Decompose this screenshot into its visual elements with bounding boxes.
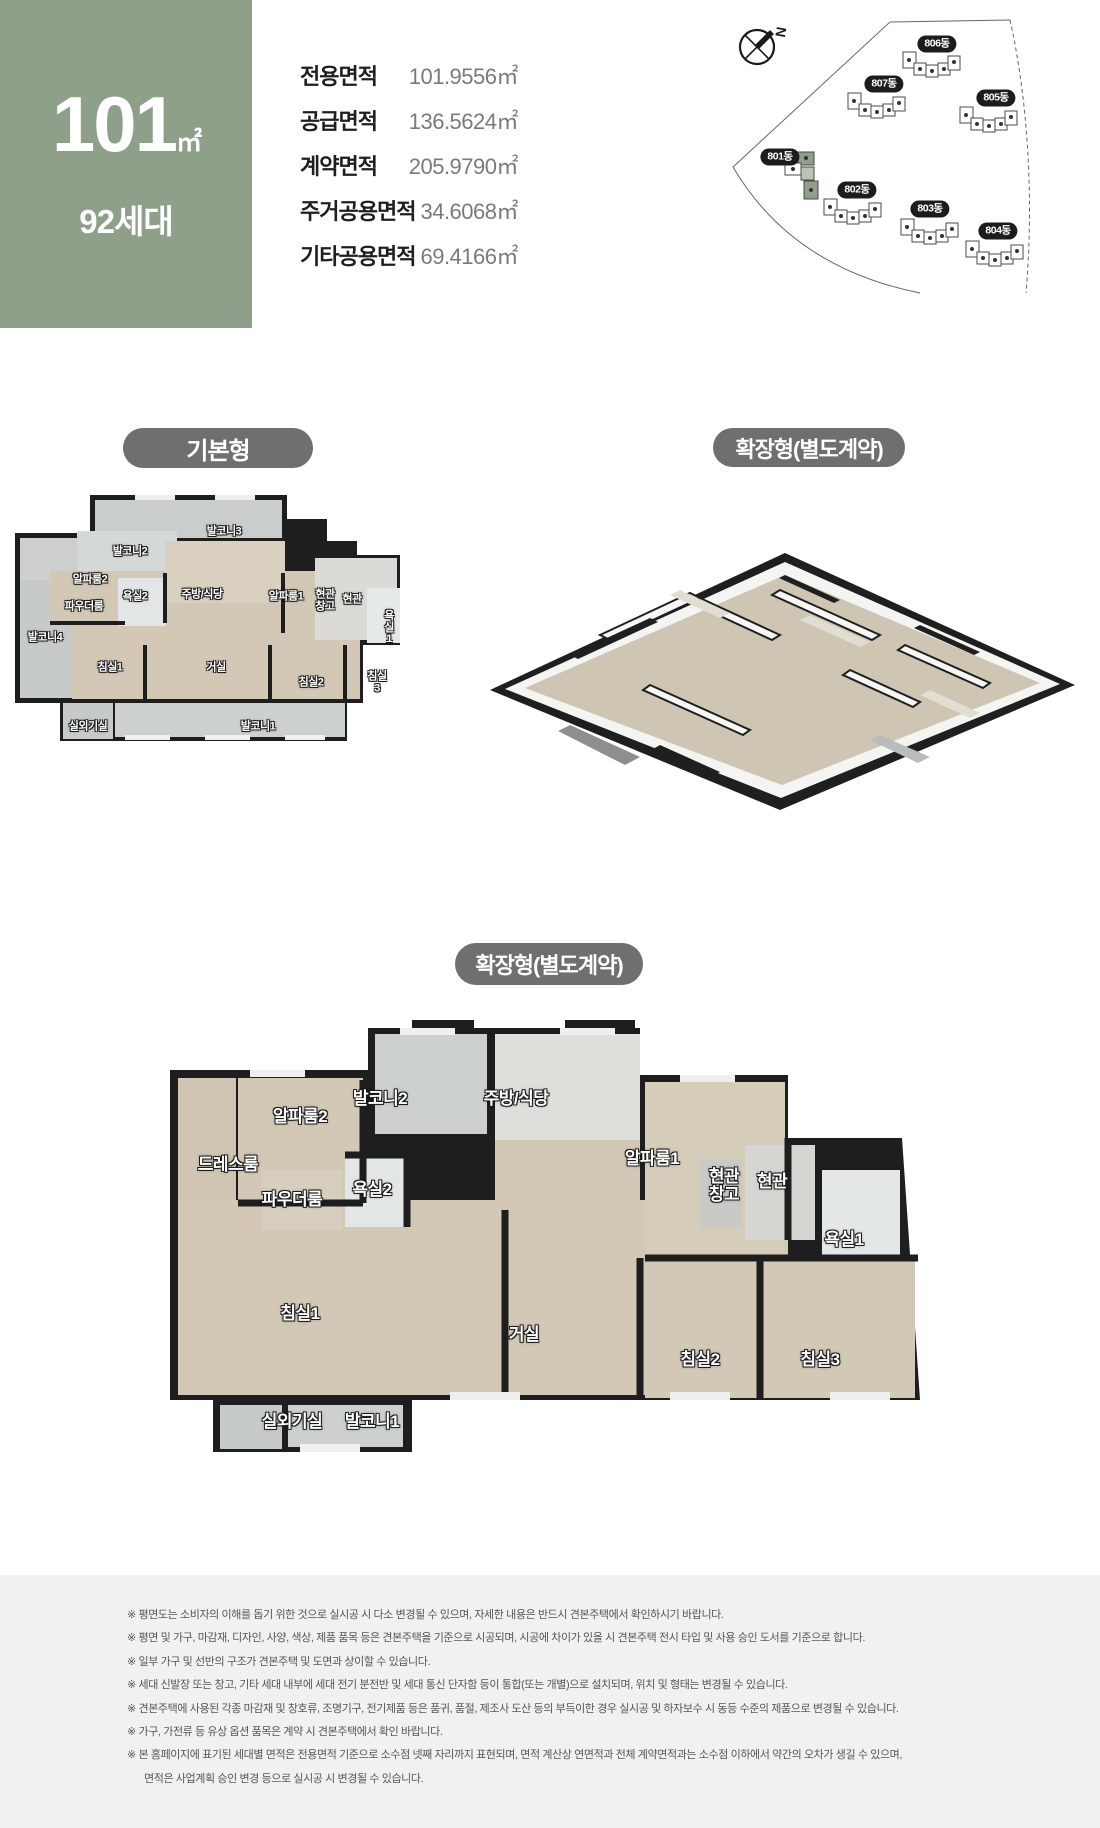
floor-plan-basic: 발코니3발코니2알파룸2욕실2주방/식당알파룸1현관 창고현관파우더룸발코니4욕… xyxy=(15,483,400,748)
room-label: 침실2 xyxy=(299,677,324,689)
area-spec-label: 계약면적 xyxy=(300,149,377,181)
disclaimer-line: ※ 가구, 가전류 등 유상 옵션 품목은 계약 시 견본주택에서 확인 바랍니… xyxy=(127,1721,902,1744)
floor-plan-3d-drawing xyxy=(450,495,1095,815)
area-spec-row: 전용면적101.9556㎡ xyxy=(300,52,518,97)
disclaimer-line: ※ 본 홈페이지에 표기된 세대별 면적은 전용면적 기준으로 소수점 넷째 자… xyxy=(127,1744,902,1767)
room-label: 발코니2 xyxy=(353,1090,407,1108)
room-label: 발코니4 xyxy=(28,632,62,644)
square-meter-unit: ㎡ xyxy=(176,127,200,157)
area-spec-row: 계약면적205.9790㎡ xyxy=(300,142,518,187)
room-label: 욕실2 xyxy=(123,591,148,603)
floor-plan-extended: 드레스룸알파룸2발코니2주방/식당알파룸1현관 창고현관욕실2파우더룸욕실1침실… xyxy=(150,1020,920,1480)
room-label: 발코니3 xyxy=(207,526,241,538)
room-label: 침실3 xyxy=(366,672,389,695)
room-label: 현관 xyxy=(342,594,361,606)
site-plan: N xyxy=(615,5,1080,295)
type-size: 101㎡ xyxy=(52,85,200,181)
site-plan-map: N xyxy=(615,5,1080,295)
disclaimer-line: ※ 견본주택에 사용된 각종 마감재 및 창호류, 조명기구, 전기제품 등은 … xyxy=(127,1698,902,1721)
area-spec-table: 전용면적101.9556㎡공급면적136.5624㎡계약면적205.9790㎡주… xyxy=(300,52,518,277)
room-label: 침실3 xyxy=(800,1351,839,1369)
room-label: 침실1 xyxy=(98,662,123,674)
area-spec-label: 공급면적 xyxy=(300,104,377,136)
area-spec-value: 101.9556㎡ xyxy=(409,59,518,91)
disclaimer-text: ※ 평면도는 소비자의 이해를 돕기 위한 것으로 실시공 시 다소 변경될 수… xyxy=(127,1604,902,1791)
area-spec-row: 기타공용면적69.4166㎡ xyxy=(300,232,518,277)
disclaimer-line: ※ 세대 신발장 또는 창고, 기타 세대 내부에 세대 전기 분전반 및 세대… xyxy=(127,1674,902,1697)
area-spec-label: 주거공용면적 xyxy=(300,194,415,226)
disclaimer-line: 면적은 사업계획 승인 변경 등으로 실시공 시 변경될 수 있습니다. xyxy=(127,1768,902,1791)
room-label: 침실2 xyxy=(680,1351,719,1369)
room-label: 욕실2 xyxy=(352,1181,391,1199)
tab-extended-type-large[interactable]: 확장형(별도계약) xyxy=(455,943,643,985)
building-label: 805동 xyxy=(976,90,1015,107)
room-label: 욕실1 xyxy=(384,611,395,646)
room-label: 발코니1 xyxy=(345,1413,399,1431)
room-label: 파우더룸 xyxy=(262,1191,323,1209)
building-label: 807동 xyxy=(864,76,903,93)
area-spec-value: 69.4166㎡ xyxy=(420,239,518,271)
area-spec-value: 136.5624㎡ xyxy=(409,104,518,136)
room-label: 현관 xyxy=(757,1173,787,1191)
room-label: 주방/식당 xyxy=(484,1090,549,1108)
floor-plan-extended-3d xyxy=(450,495,1095,815)
room-label: 침실1 xyxy=(280,1305,319,1323)
room-label: 주방/식당 xyxy=(181,589,222,601)
room-label: 실외기실 xyxy=(262,1413,323,1431)
room-label: 거실 xyxy=(509,1326,539,1344)
room-label: 거실 xyxy=(206,662,225,674)
disclaimer-line: ※ 평면도는 소비자의 이해를 돕기 위한 것으로 실시공 시 다소 변경될 수… xyxy=(127,1604,902,1627)
type-summary-box: 101㎡ 92세대 xyxy=(0,0,252,328)
room-label: 실외기실 xyxy=(69,721,107,733)
room-label: 발코니2 xyxy=(113,546,147,558)
room-label: 욕실1 xyxy=(824,1231,863,1249)
disclaimer-box: ※ 평면도는 소비자의 이해를 돕기 위한 것으로 실시공 시 다소 변경될 수… xyxy=(0,1575,1100,1828)
room-label: 파우더룸 xyxy=(65,601,103,613)
area-spec-label: 기타공용면적 xyxy=(300,239,415,271)
building-label: 806동 xyxy=(917,36,956,53)
disclaimer-line: ※ 평면 및 가구, 마감재, 디자인, 사양, 색상, 제품 품목 등은 견본… xyxy=(127,1627,902,1650)
disclaimer-line: ※ 일부 가구 및 선반의 구조가 견본주택 및 도면과 상이할 수 있습니다. xyxy=(127,1651,902,1674)
compass-n-label: N xyxy=(772,26,790,39)
floor-plan-basic-drawing xyxy=(15,483,400,748)
room-label: 드레스룸 xyxy=(198,1156,259,1174)
tab-extended-type[interactable]: 확장형(별도계약) xyxy=(713,428,905,467)
area-spec-value: 205.9790㎡ xyxy=(409,149,518,181)
area-spec-row: 주거공용면적34.6068㎡ xyxy=(300,187,518,232)
room-label: 알파룸1 xyxy=(269,591,303,603)
building-label: 803동 xyxy=(910,201,949,218)
households-count: 92세대 xyxy=(79,195,172,243)
building-label-highlighted: 801동 xyxy=(760,149,799,166)
compass-icon xyxy=(740,30,774,64)
room-label: 알파룸1 xyxy=(625,1150,679,1168)
area-spec-value: 34.6068㎡ xyxy=(420,194,518,226)
room-label: 알파룸2 xyxy=(73,574,107,586)
building-label: 804동 xyxy=(978,223,1017,240)
room-label: 현관 창고 xyxy=(315,590,334,613)
room-label: 알파룸2 xyxy=(273,1108,327,1126)
room-label: 현관 창고 xyxy=(709,1168,739,1204)
room-label: 발코니1 xyxy=(241,721,275,733)
tab-basic-type[interactable]: 기본형 xyxy=(123,428,313,468)
area-spec-row: 공급면적136.5624㎡ xyxy=(300,97,518,142)
building-label: 802동 xyxy=(837,182,876,199)
area-spec-label: 전용면적 xyxy=(300,59,377,91)
